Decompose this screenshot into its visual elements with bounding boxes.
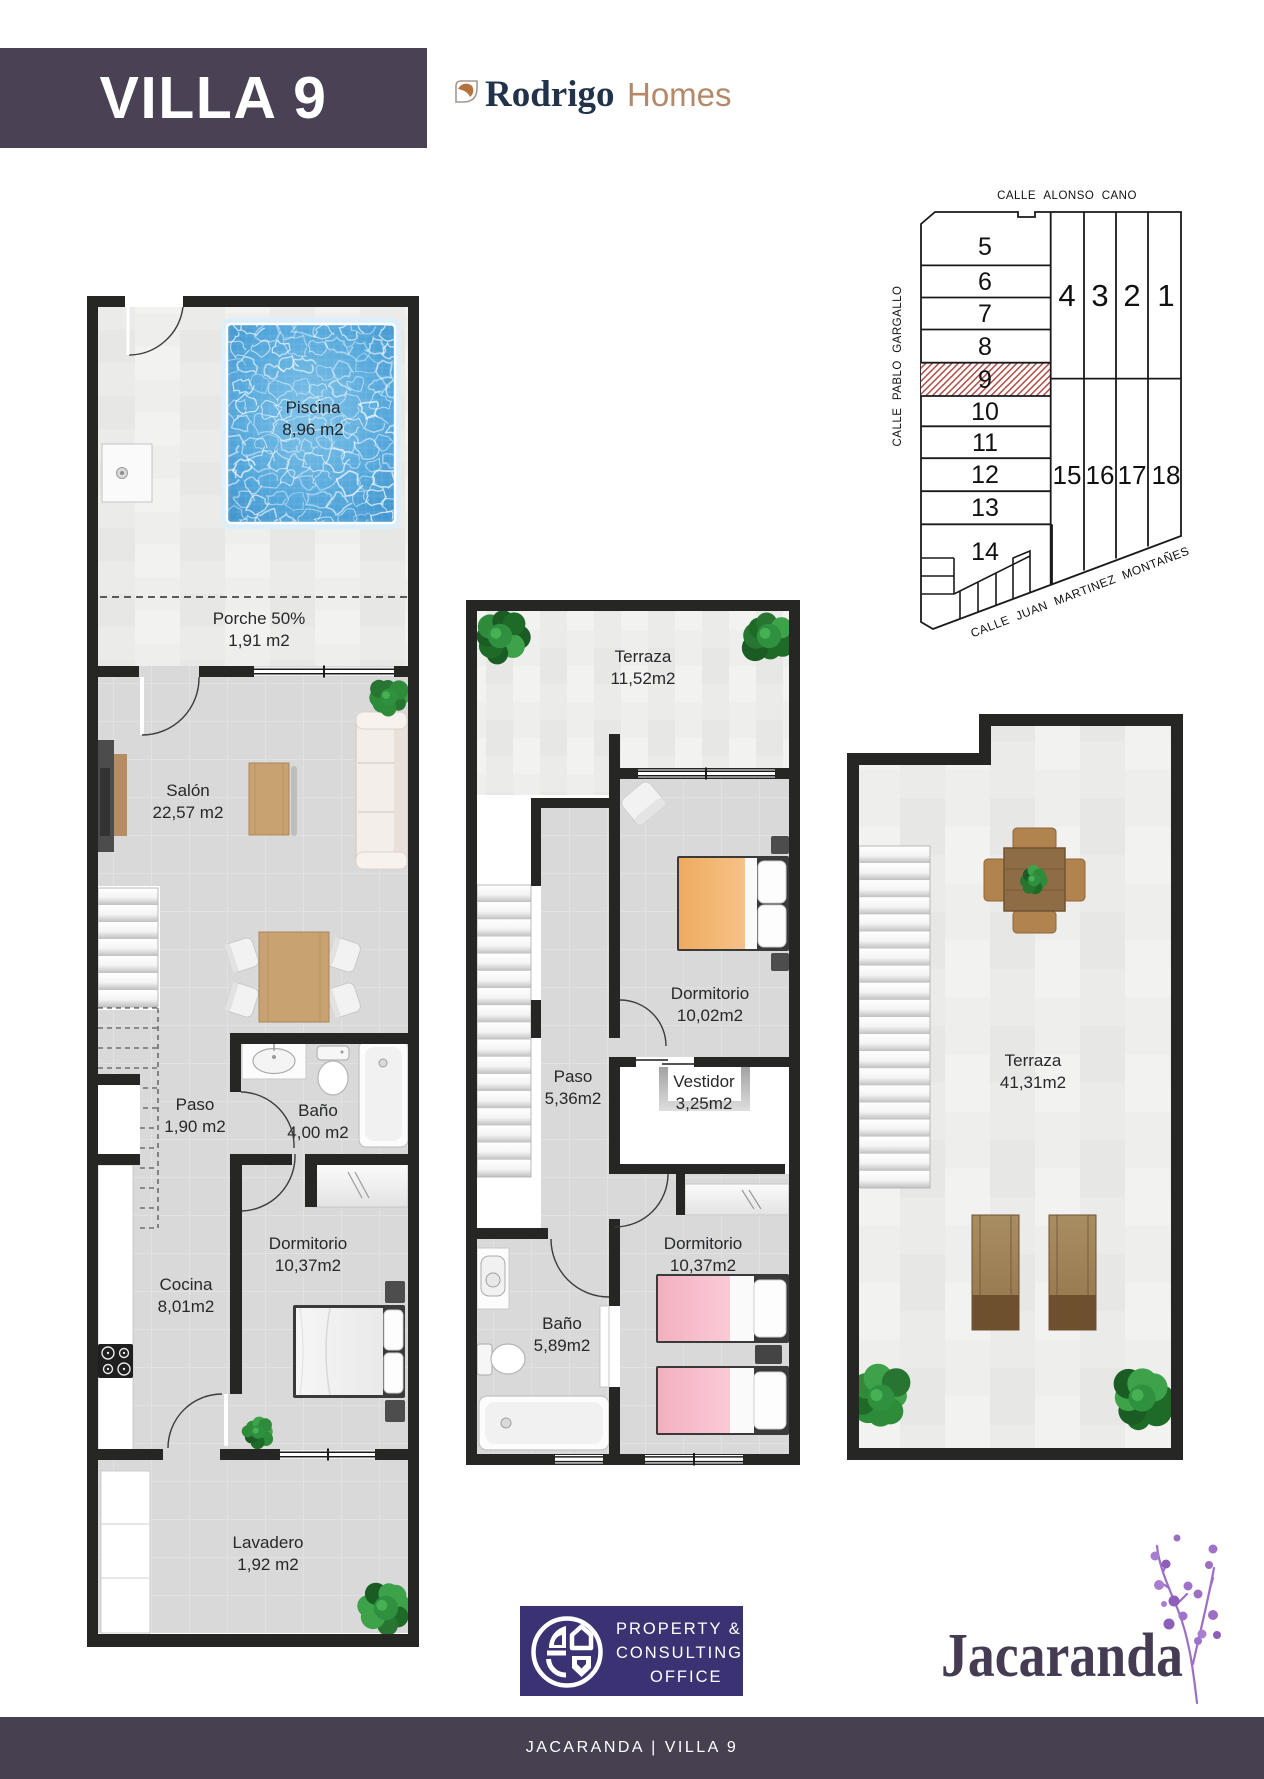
svg-text:Terraza: Terraza <box>615 647 672 666</box>
svg-text:8: 8 <box>978 333 992 361</box>
svg-text:Dormitorio: Dormitorio <box>671 984 749 1003</box>
svg-text:3: 3 <box>1091 278 1108 313</box>
svg-text:8,96 m2: 8,96 m2 <box>282 420 343 439</box>
svg-text:CONSULTING: CONSULTING <box>616 1644 743 1662</box>
svg-text:1,90 m2: 1,90 m2 <box>164 1117 225 1136</box>
svg-text:Porche 50%: Porche 50% <box>213 609 306 628</box>
svg-text:1,91 m2: 1,91 m2 <box>228 631 289 650</box>
svg-text:12: 12 <box>971 461 999 489</box>
svg-text:10,37m2: 10,37m2 <box>275 1256 341 1275</box>
svg-text:Salón: Salón <box>166 781 209 800</box>
svg-text:Vestidor: Vestidor <box>673 1072 735 1091</box>
svg-text:Paso: Paso <box>176 1095 215 1114</box>
svg-text:Lavadero: Lavadero <box>233 1533 304 1552</box>
svg-text:11,52m2: 11,52m2 <box>611 669 676 688</box>
svg-text:7: 7 <box>978 300 992 328</box>
svg-text:1: 1 <box>1157 278 1174 313</box>
svg-text:6: 6 <box>978 268 992 296</box>
svg-text:CALLE JUAN MARTINEZ MONTAÑE: CALLE JUAN MARTINEZ MONTAÑES <box>969 544 1192 641</box>
svg-text:Rodrigo: Rodrigo <box>485 74 615 115</box>
svg-text:Terraza: Terraza <box>1005 1051 1062 1070</box>
svg-text:OFFICE: OFFICE <box>650 1668 723 1686</box>
svg-text:22,57 m2: 22,57 m2 <box>153 803 224 822</box>
svg-text:14: 14 <box>971 538 999 566</box>
svg-text:Baño: Baño <box>542 1314 582 1333</box>
svg-text:10,37m2: 10,37m2 <box>670 1256 736 1275</box>
svg-text:5,89m2: 5,89m2 <box>534 1336 591 1355</box>
svg-text:8,01m2: 8,01m2 <box>158 1297 215 1316</box>
svg-text:3,25m2: 3,25m2 <box>676 1094 733 1113</box>
svg-text:Dormitorio: Dormitorio <box>269 1234 347 1253</box>
svg-text:Jacaranda: Jacaranda <box>941 1622 1183 1690</box>
svg-text:9: 9 <box>978 366 992 394</box>
svg-text:10: 10 <box>971 398 999 426</box>
svg-text:4: 4 <box>1058 278 1075 313</box>
svg-text:PROPERTY &: PROPERTY & <box>616 1620 742 1638</box>
svg-text:Cocina: Cocina <box>160 1275 213 1294</box>
svg-text:4,00 m2: 4,00 m2 <box>287 1123 348 1142</box>
svg-text:Homes: Homes <box>627 76 732 113</box>
svg-text:2: 2 <box>1123 278 1140 313</box>
svg-text:Baño: Baño <box>298 1101 338 1120</box>
svg-text:11: 11 <box>972 429 998 457</box>
svg-text:5,36m2: 5,36m2 <box>545 1089 602 1108</box>
svg-text:Piscina: Piscina <box>286 398 341 417</box>
svg-text:17: 17 <box>1118 460 1147 490</box>
svg-text:CALLE PABLO GARGALLO: CALLE PABLO GARGALLO <box>892 286 904 447</box>
svg-text:16: 16 <box>1086 460 1115 490</box>
svg-text:10,02m2: 10,02m2 <box>677 1006 743 1025</box>
svg-text:Paso: Paso <box>554 1067 593 1086</box>
svg-text:41,31m2: 41,31m2 <box>1000 1073 1066 1092</box>
svg-text:5: 5 <box>978 233 992 261</box>
svg-text:CALLE ALONSO CANO: CALLE ALONSO CANO <box>997 190 1137 202</box>
svg-text:1,92 m2: 1,92 m2 <box>237 1555 298 1574</box>
svg-text:15: 15 <box>1053 460 1082 490</box>
svg-text:Dormitorio: Dormitorio <box>664 1234 742 1253</box>
svg-text:13: 13 <box>971 494 999 522</box>
svg-text:18: 18 <box>1152 460 1181 490</box>
